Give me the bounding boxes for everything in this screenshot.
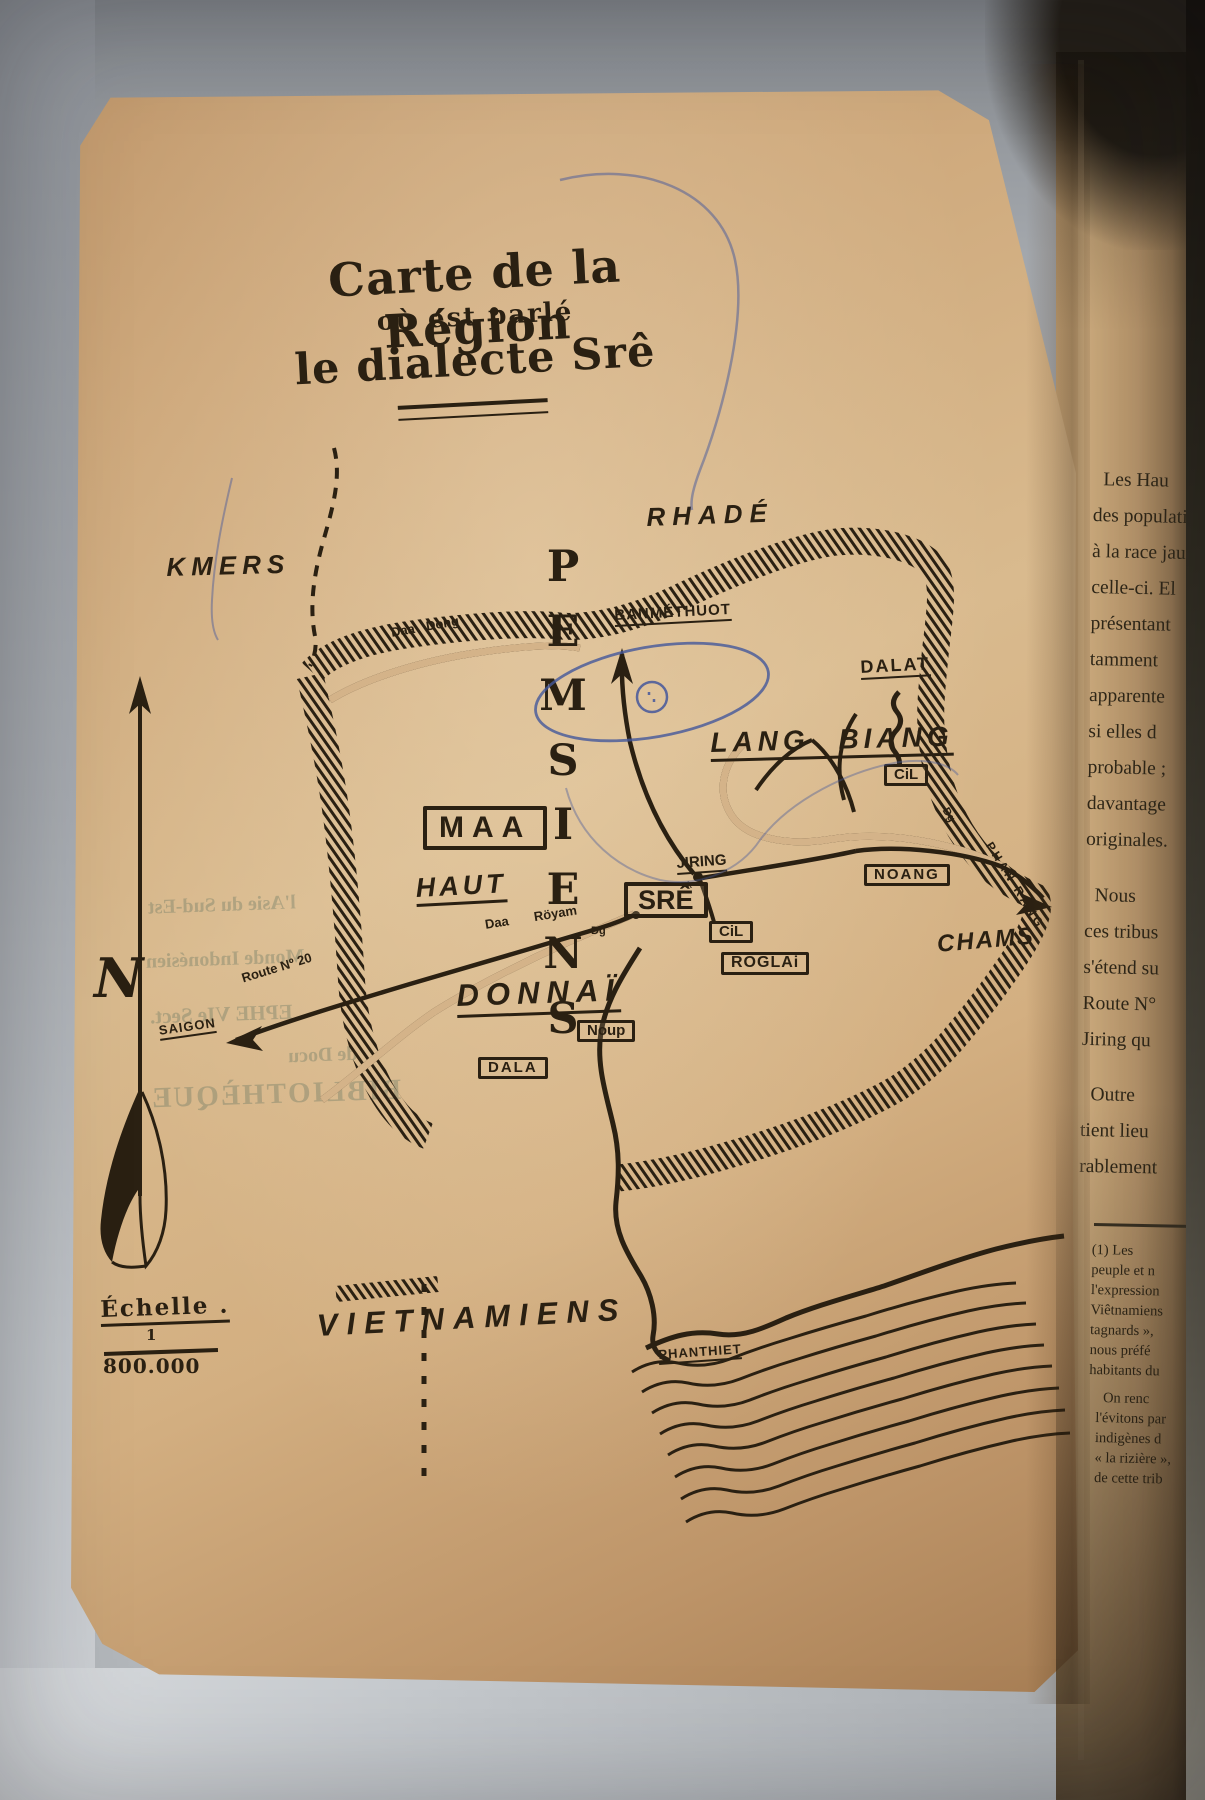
place-label-dg-sre: Dg: [591, 926, 606, 938]
footnote-line: Viêtnamiens: [1090, 1300, 1163, 1322]
box-label-dala: DALA: [478, 1057, 548, 1079]
scale-denominator: 800.000: [103, 1356, 200, 1377]
box-label-roglai: RÖGLAi: [721, 952, 809, 975]
box-label-maa: MAA: [423, 806, 547, 850]
page-fold-highlight: [1078, 60, 1084, 1760]
region-label-rhade: RHADÉ: [646, 500, 774, 532]
book-cover-edge: [1186, 0, 1205, 1800]
place-label-jiring: JIRING: [676, 853, 727, 875]
photo-of-book-map-page: l'Asie du Sud-Est Monde Indonésien EPHE …: [0, 0, 1205, 1800]
facing-page-line: [1081, 1057, 1201, 1079]
footnote-line: peuple et n: [1091, 1260, 1164, 1282]
footnote-line: nous préfé: [1089, 1340, 1162, 1362]
book-cover-shadow: [985, 0, 1205, 250]
region-label-lang-biang: LANG BIANG: [710, 722, 954, 763]
footnote-line: « la rizière »,: [1094, 1448, 1171, 1470]
footnote-line: indigènes d: [1095, 1428, 1172, 1450]
facing-page-line: Jiring qu: [1082, 1021, 1203, 1060]
facing-page-line: rablement: [1079, 1149, 1200, 1188]
footnote-line: habitants du: [1089, 1360, 1162, 1382]
facing-page-line: Outre: [1080, 1077, 1201, 1116]
ghost-stamp-line: de Docu: [288, 1043, 358, 1068]
footnote-line: de cette trib: [1094, 1468, 1171, 1490]
region-label-donnai: DONNAÏ: [456, 974, 621, 1017]
footnote-line: tagnards »,: [1090, 1320, 1163, 1342]
pemsiens-letter: P: [536, 542, 590, 607]
scale-numerator: 1: [146, 1328, 156, 1344]
pemsiens-letter: M: [536, 671, 590, 736]
pemsiens-letter: S: [536, 736, 590, 801]
facing-page-line: tient lieu: [1080, 1113, 1201, 1152]
box-label-noup: Noup: [577, 1020, 635, 1042]
box-label-noang: NOANG: [864, 864, 950, 886]
footnote-line: On renc: [1096, 1388, 1173, 1410]
facing-page-footnote1: (1) Lespeuple et nl'expressionViêtnamien…: [1089, 1240, 1164, 1381]
region-label-haut: HAUT: [415, 869, 508, 907]
footnote-line: (1) Les: [1092, 1240, 1165, 1262]
place-label-dalat: DALAT: [860, 654, 931, 680]
box-label-sre: SRÊ: [624, 882, 708, 918]
box-label-cil-center: CiL: [709, 921, 753, 943]
footnote-line: l'évitons par: [1095, 1408, 1172, 1430]
pemsiens-letter: E: [536, 607, 590, 672]
facing-page-footnote2: On rencl'évitons parindigènes d« la rizi…: [1094, 1388, 1173, 1490]
footnote-line: l'expression: [1091, 1280, 1164, 1302]
region-label-kmers: KMERS: [166, 551, 291, 582]
facing-page-line: Route N°: [1082, 985, 1203, 1024]
box-label-cil-north: CiL: [884, 764, 928, 786]
compass-north-letter: N: [94, 950, 143, 1007]
scale-label: Échelle .: [100, 1293, 230, 1327]
